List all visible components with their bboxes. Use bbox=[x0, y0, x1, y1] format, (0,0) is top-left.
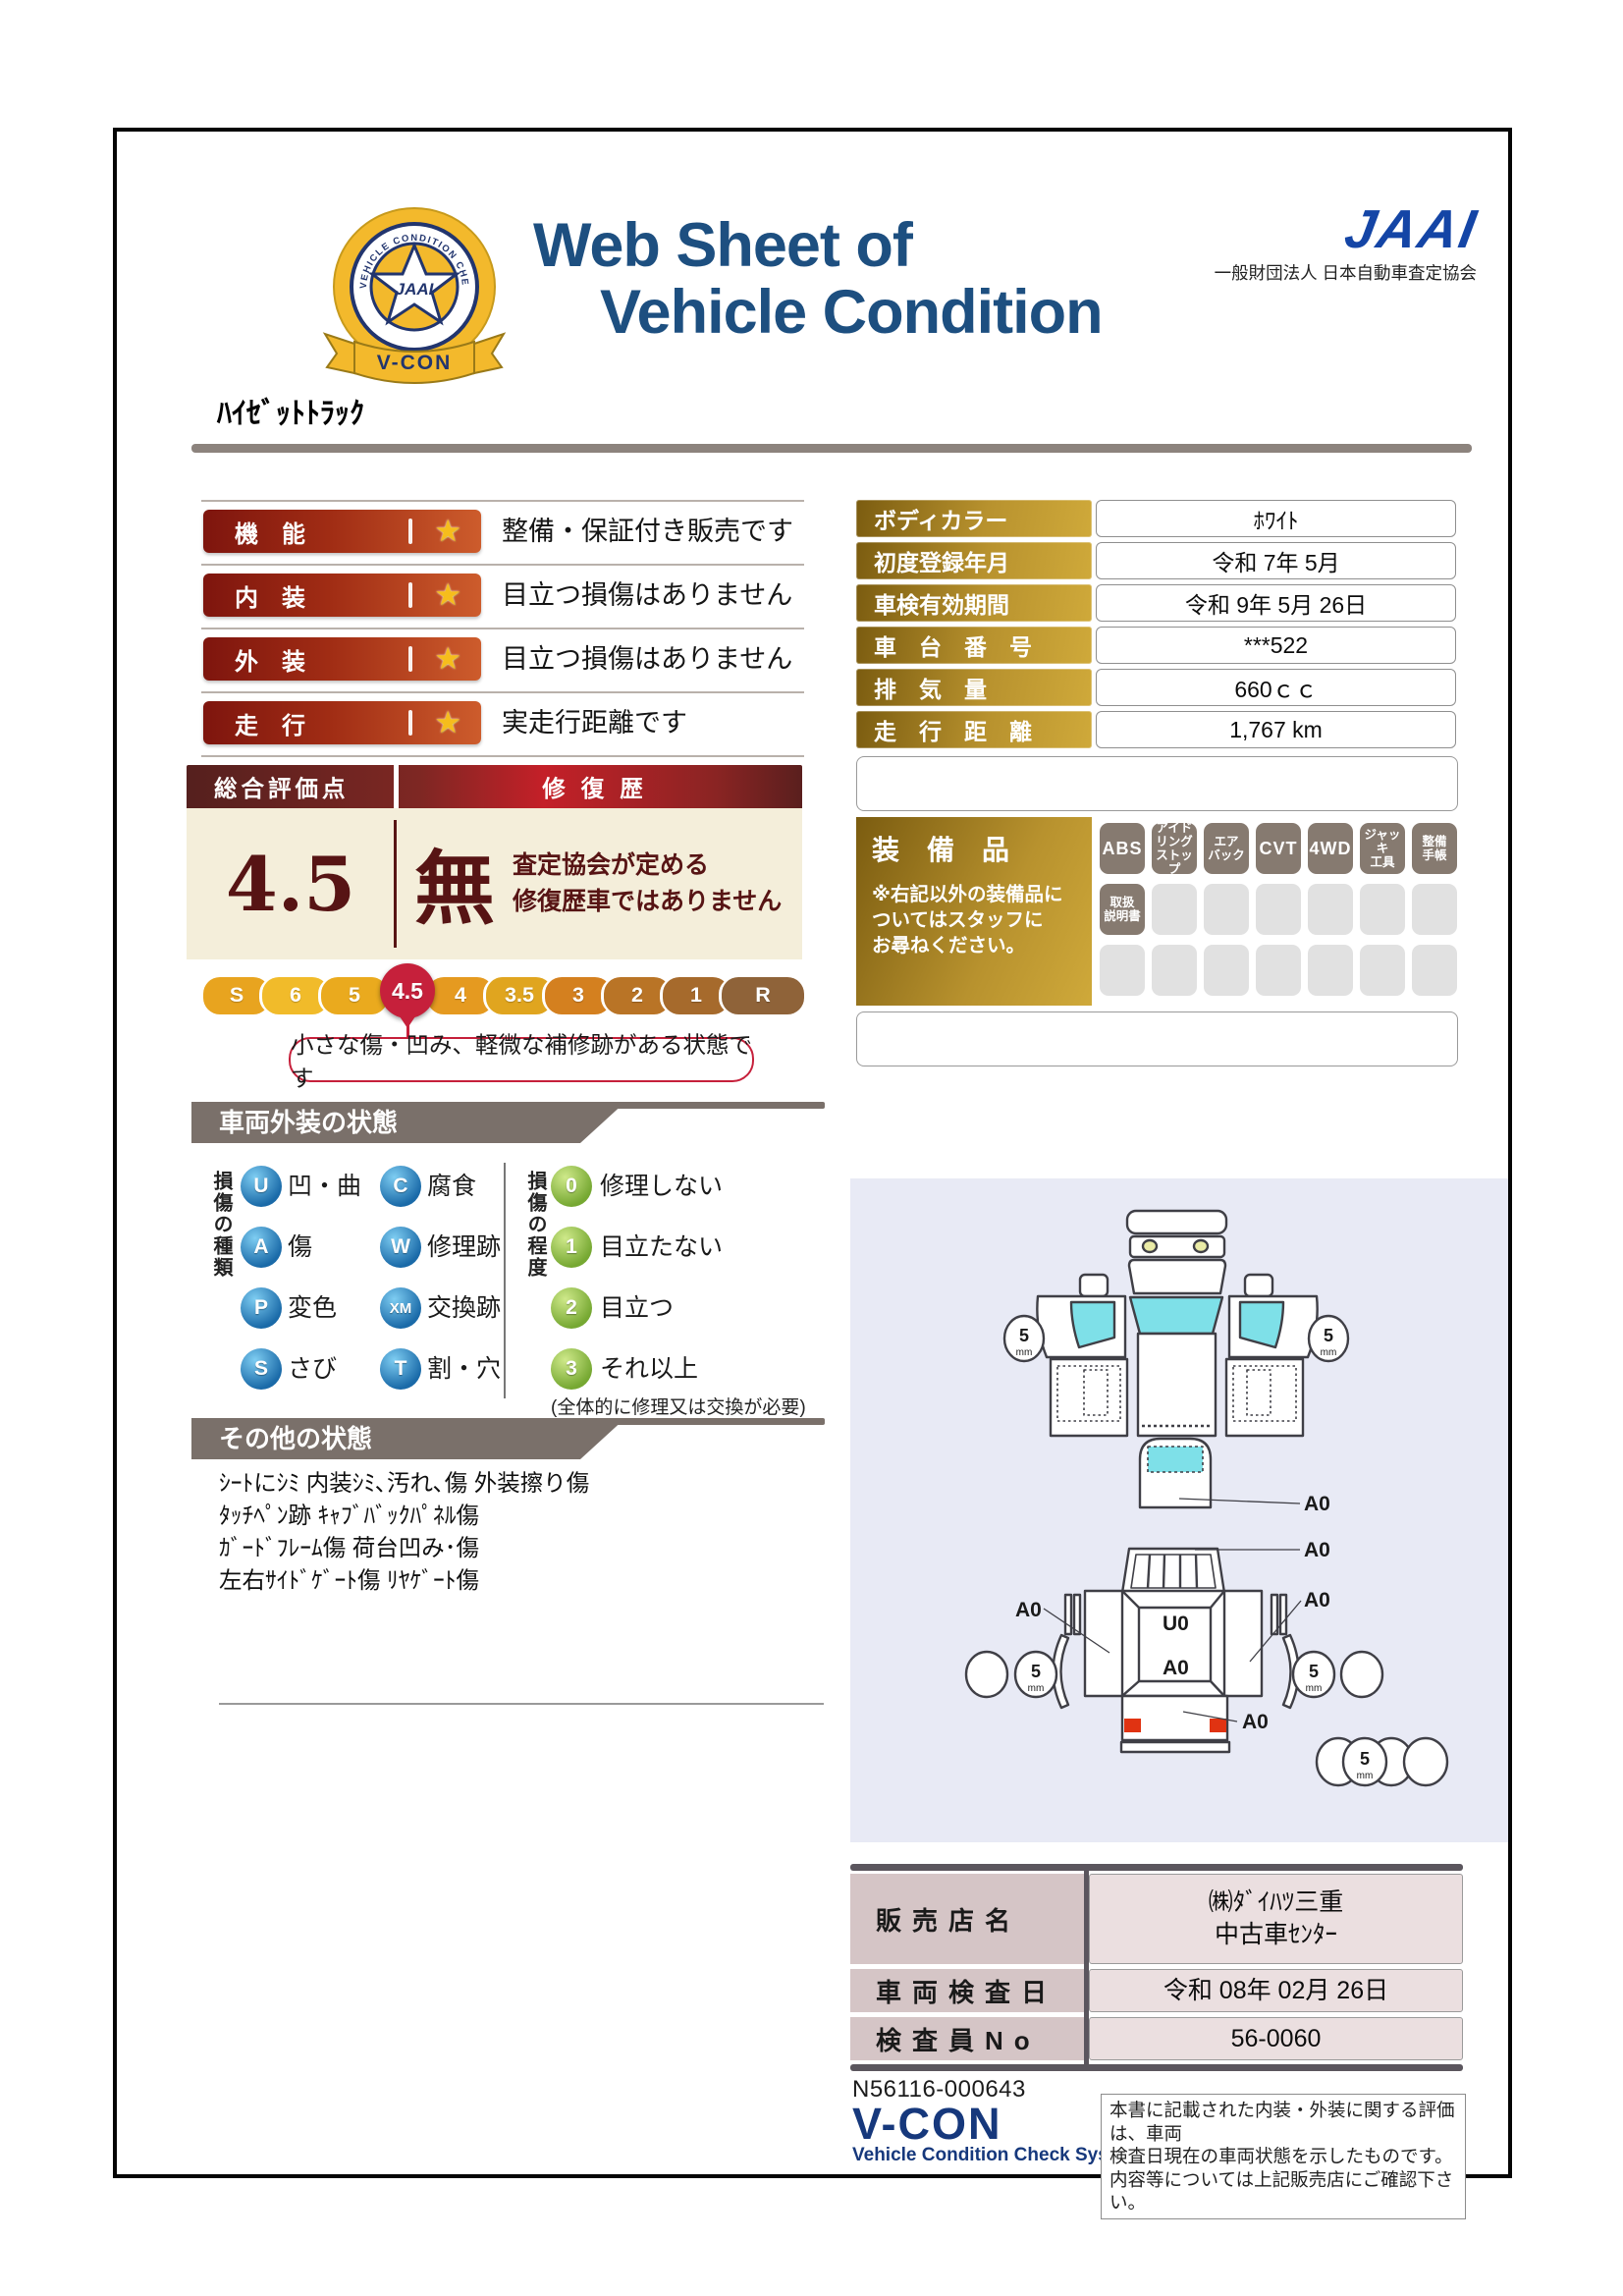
dealer-table-top-bar bbox=[850, 1864, 1463, 1871]
damage-type-label: 腐食 bbox=[427, 1166, 476, 1207]
equipment-tag-empty bbox=[1412, 884, 1457, 935]
equipment-tag-airbag: エア バック bbox=[1204, 823, 1249, 874]
damage-type-code: U bbox=[241, 1166, 282, 1207]
diagram-label-a0: A0 bbox=[1304, 1493, 1330, 1515]
badge-divider bbox=[408, 582, 412, 608]
info-label: 車検有効期間 bbox=[856, 584, 1092, 622]
sheet-title-line2: Vehicle Condition bbox=[600, 281, 1103, 346]
damage-degree-label: それ以上 bbox=[600, 1348, 698, 1390]
inspector-no-value: 56-0060 bbox=[1089, 2017, 1463, 2060]
diagram-label-a0: A0 bbox=[1163, 1657, 1189, 1679]
grade-scale-item: S bbox=[203, 977, 270, 1014]
damage-type-label: 割・穴 bbox=[427, 1348, 501, 1390]
equipment-tag-empty bbox=[1308, 945, 1353, 996]
grade-scale-item: 1 bbox=[663, 977, 730, 1014]
diagram-rear-window bbox=[1148, 1447, 1203, 1472]
equipment-tag-empty bbox=[1152, 884, 1197, 935]
info-value: 1,767 km bbox=[1096, 711, 1456, 748]
badge-divider bbox=[408, 646, 412, 672]
dealer-table-bottom-bar bbox=[850, 2064, 1463, 2071]
damage-type-label: 傷 bbox=[288, 1227, 312, 1268]
tire-depth-value: 5 bbox=[1324, 1326, 1333, 1345]
damage-type-axis: 損傷の種類 bbox=[207, 1171, 236, 1279]
equipment-tag-empty bbox=[1360, 945, 1405, 996]
damage-type-label: 修理跡 bbox=[427, 1227, 501, 1268]
diagram-label-a0: A0 bbox=[1015, 1599, 1042, 1621]
damage-degree-code: 2 bbox=[551, 1287, 592, 1329]
equipment-title: 装 備 品 bbox=[872, 829, 1092, 868]
rating-badge-interior: 内 装 ★ bbox=[203, 574, 481, 617]
overall-score-value: 4.5 bbox=[187, 808, 395, 959]
diagram-taillight-right bbox=[1210, 1719, 1226, 1732]
tire-depth-value: 5 bbox=[1019, 1326, 1029, 1345]
disclaimer-text: 本書に記載された内装・外装に関する評価は、車両 検査日現在の車両状態を示したもの… bbox=[1101, 2094, 1466, 2219]
star-icon: ★ bbox=[434, 705, 461, 740]
sheet-frame: VEHICLE CONDITION CHECK SYSTEM JAAI V-CO… bbox=[113, 128, 1512, 2178]
damage-degree-code: 1 bbox=[551, 1227, 592, 1268]
info-value: ﾎﾜｲﾄ bbox=[1096, 500, 1456, 537]
star-icon: ★ bbox=[434, 577, 461, 613]
rating-separator bbox=[201, 628, 804, 629]
damage-type-label: 交換跡 bbox=[427, 1287, 501, 1329]
exterior-section-title: 車両外装の状態 bbox=[191, 1102, 625, 1143]
badge-ribbon-text: V-CON bbox=[377, 352, 453, 374]
tire-depth-value: 5 bbox=[1360, 1749, 1370, 1769]
grade-callout: 小さな傷・凹み、軽微な補修跡がある状態です bbox=[289, 1037, 754, 1082]
diagram-taillight-left bbox=[1124, 1719, 1141, 1732]
dealer-name-value: ㈱ﾀﾞｲﾊﾂ三重 中古車ｾﾝﾀｰ bbox=[1089, 1874, 1463, 1964]
repair-history-title: 修復歴 bbox=[399, 770, 802, 803]
equipment-tag-empty bbox=[1360, 884, 1405, 935]
info-label: ボディカラー bbox=[856, 500, 1092, 537]
diagram-tailgate bbox=[1122, 1696, 1227, 1740]
damage-degree-axis: 損傷の程度 bbox=[521, 1171, 550, 1279]
tire-depth-value: 5 bbox=[1031, 1662, 1041, 1681]
diagram-hood bbox=[1129, 1260, 1225, 1293]
jaai-logo-block: JAAI 一般財団法人 日本自動車査定協会 bbox=[1138, 202, 1477, 285]
rating-desc: 実走行距離です bbox=[502, 701, 687, 744]
equipment-note: ※右記以外の装備品に ついてはスタッフに お尋ねください。 bbox=[872, 882, 1092, 958]
damage-degree-label: 目立つ bbox=[600, 1287, 674, 1329]
rating-separator bbox=[201, 564, 804, 566]
rating-badge-exterior: 外 装 ★ bbox=[203, 637, 481, 681]
rating-badge-mileage: 走 行 ★ bbox=[203, 701, 481, 744]
legend-divider bbox=[504, 1163, 506, 1398]
badge-jaai-text: JAAI bbox=[396, 280, 435, 299]
vehicle-diagram-panel: A0 A0 A0 A0 U0 A0 A0 5 mm 5 mm 5 mm 5 mm… bbox=[850, 1178, 1508, 1842]
vcon-badge-logo-icon: VEHICLE CONDITION CHECK SYSTEM JAAI V-CO… bbox=[309, 204, 519, 385]
equipment-tag-cvt: CVT bbox=[1256, 823, 1301, 874]
overall-body: 4.5 無 査定協会が定める 修復歴車ではありません bbox=[187, 808, 802, 959]
rating-desc: 目立つ損傷はありません bbox=[502, 574, 792, 617]
tag-label: 取扱 説明書 bbox=[1104, 896, 1141, 923]
grade-scale: S 6 5 4.5 4 3.5 3 2 1 R bbox=[203, 972, 796, 1018]
equipment-tag-empty bbox=[1256, 884, 1301, 935]
info-label: 初度登録年月 bbox=[856, 542, 1092, 579]
other-section-title: その他の状態 bbox=[191, 1418, 625, 1459]
equipment-tag-jack-tools: ジャッキ 工具 bbox=[1360, 823, 1405, 874]
damage-type-code: P bbox=[241, 1287, 282, 1329]
tag-label: アイド リング ストップ bbox=[1152, 821, 1197, 876]
info-empty-box bbox=[856, 756, 1458, 811]
equipment-empty-box bbox=[856, 1011, 1458, 1066]
grade-scale-item: 4 bbox=[427, 977, 494, 1014]
rating-label: 機 能 bbox=[235, 515, 305, 549]
grade-scale-item: 6 bbox=[262, 977, 329, 1014]
tire-depth-unit: mm bbox=[1357, 1771, 1374, 1781]
badge-divider bbox=[408, 710, 412, 736]
damage-type-code: C bbox=[380, 1166, 421, 1207]
star-icon: ★ bbox=[434, 641, 461, 677]
inspector-no-label: 検査員No bbox=[850, 2017, 1084, 2060]
diagram-front-bumper bbox=[1127, 1211, 1226, 1233]
diagram-label-a0: A0 bbox=[1304, 1589, 1330, 1612]
repair-history-value: 無 bbox=[414, 823, 495, 940]
other-condition-text: ｼｰﾄにｼﾐ 内装ｼﾐ､汚れ､傷 外装擦り傷 ﾀｯﾁﾍﾟﾝ跡 ｷｬﾌﾞﾊﾞｯｸﾊ… bbox=[219, 1467, 808, 1597]
tire-depth-unit: mm bbox=[1321, 1347, 1337, 1358]
tire-depth-unit: mm bbox=[1306, 1683, 1323, 1694]
damage-type-code: S bbox=[241, 1348, 282, 1390]
damage-degree-code: 3 bbox=[551, 1348, 592, 1390]
rating-label: 内 装 bbox=[235, 578, 305, 613]
tire-depth-unit: mm bbox=[1028, 1683, 1045, 1694]
grade-scale-item: R bbox=[722, 977, 804, 1014]
damage-degree-note: (全体的に修理又は交換が必要) bbox=[551, 1393, 806, 1419]
other-section-rule bbox=[219, 1703, 824, 1705]
inspection-date-label: 車両検査日 bbox=[850, 1969, 1084, 2012]
damage-type-code: A bbox=[241, 1227, 282, 1268]
equipment-tag-empty bbox=[1100, 945, 1145, 996]
equipment-tag-idling-stop: アイド リング ストップ bbox=[1152, 823, 1197, 874]
vcon-subtitle: Vehicle Condition Check System bbox=[852, 2145, 1142, 2166]
tag-label: CVT bbox=[1260, 839, 1298, 859]
diagram-headrest-left bbox=[1080, 1275, 1108, 1296]
grade-scale-item: 5 bbox=[321, 977, 388, 1014]
equipment-panel: 装 備 品 ※右記以外の装備品に ついてはスタッフに お尋ねください。 bbox=[856, 817, 1092, 1006]
jaai-logo: JAAI bbox=[1133, 202, 1482, 256]
equipment-tag-service-book: 整備 手帳 bbox=[1412, 823, 1457, 874]
grade-scale-item: 3.5 bbox=[486, 977, 553, 1014]
info-label: 走 行 距 離 bbox=[856, 711, 1092, 748]
diagram-headlight-right bbox=[1194, 1240, 1208, 1252]
equipment-row-3 bbox=[1100, 945, 1457, 996]
equipment-tag-empty bbox=[1204, 884, 1249, 935]
overall-score-block: 総合評価点 修復歴 4.5 無 査定協会が定める 修復歴車ではありません bbox=[187, 765, 802, 959]
equipment-tag-manual: 取扱 説明書 bbox=[1100, 884, 1145, 935]
rating-desc: 目立つ損傷はありません bbox=[502, 637, 792, 681]
equipment-row-2: 取扱 説明書 bbox=[1100, 884, 1457, 935]
info-value: 660ｃｃ bbox=[1096, 669, 1456, 706]
info-label: 車 台 番 号 bbox=[856, 627, 1092, 664]
vehicle-name: ﾊｲｾﾞｯﾄﾄﾗｯｸ bbox=[217, 389, 364, 432]
damage-type-label: さび bbox=[288, 1348, 337, 1390]
equipment-tag-empty bbox=[1152, 945, 1197, 996]
rating-desc: 整備・保証付き販売です bbox=[502, 510, 793, 553]
rating-badge-function: 機 能 ★ bbox=[203, 510, 481, 553]
diagram-headrest-right bbox=[1245, 1275, 1272, 1296]
rating-separator bbox=[201, 691, 804, 693]
diagram-label-u0: U0 bbox=[1163, 1613, 1189, 1635]
tag-label: エア バック bbox=[1208, 835, 1245, 862]
damage-type-label: 凹・曲 bbox=[288, 1166, 361, 1207]
diagram-headlight-left bbox=[1143, 1240, 1157, 1252]
repair-history-note: 査定協会が定める 修復歴車ではありません bbox=[513, 847, 782, 920]
diagram-bed-side-left bbox=[1051, 1359, 1127, 1436]
overall-title: 総合評価点 bbox=[214, 770, 350, 803]
tag-label: ジャッキ 工具 bbox=[1360, 828, 1405, 869]
equipment-tag-empty bbox=[1308, 884, 1353, 935]
rating-separator bbox=[201, 500, 804, 502]
grade-scale-item: 2 bbox=[604, 977, 671, 1014]
equipment-tag-empty bbox=[1256, 945, 1301, 996]
info-label: 排 気 量 bbox=[856, 669, 1092, 706]
rating-label: 走 行 bbox=[235, 706, 305, 740]
grade-scale-item: 3 bbox=[545, 977, 612, 1014]
equipment-row-1: ABS アイド リング ストップ エア バック CVT 4WD ジャッキ 工具 … bbox=[1100, 823, 1457, 874]
vehicle-diagram: A0 A0 A0 A0 U0 A0 A0 5 mm 5 mm 5 mm 5 mm… bbox=[850, 1178, 1508, 1842]
diagram-windshield bbox=[1130, 1297, 1222, 1334]
header-divider-rule bbox=[191, 444, 1472, 453]
sheet-title-line1: Web Sheet of bbox=[533, 214, 912, 279]
badge-divider bbox=[408, 519, 412, 544]
diagram-rear-step bbox=[1121, 1742, 1229, 1752]
info-value: 令和 9年 5月 26日 bbox=[1096, 584, 1456, 622]
diagram-label-a0: A0 bbox=[1304, 1539, 1330, 1561]
damage-degree-label: 修理しない bbox=[600, 1166, 723, 1207]
tire-depth-unit: mm bbox=[1016, 1347, 1033, 1358]
equipment-tag-abs: ABS bbox=[1100, 823, 1145, 874]
equipment-tag-empty bbox=[1204, 945, 1249, 996]
damage-degree-label: 目立たない bbox=[600, 1227, 723, 1268]
overall-body-divider bbox=[394, 820, 397, 948]
tag-label: 整備 手帳 bbox=[1422, 835, 1446, 862]
star-icon: ★ bbox=[434, 514, 461, 549]
diagram-cab-floor bbox=[1138, 1334, 1216, 1436]
dealer-name-label: 販売店名 bbox=[850, 1874, 1084, 1964]
damage-type-label: 変色 bbox=[288, 1287, 337, 1329]
info-value: ***522 bbox=[1096, 627, 1456, 664]
tag-label: 4WD bbox=[1310, 839, 1352, 859]
diagram-spare-tire bbox=[1404, 1738, 1447, 1785]
diagram-tire-rear-right-outer bbox=[1341, 1652, 1382, 1697]
tag-label: ABS bbox=[1102, 839, 1142, 859]
grade-scale-selected: 4.5 bbox=[380, 963, 435, 1018]
vehicle-condition-sheet: VEHICLE CONDITION CHECK SYSTEM JAAI V-CO… bbox=[0, 0, 1623, 2296]
damage-type-code: W bbox=[380, 1227, 421, 1268]
rating-separator bbox=[201, 755, 804, 757]
diagram-label-a0: A0 bbox=[1242, 1711, 1269, 1733]
vcon-logo: V-CON bbox=[852, 2102, 1002, 2146]
overall-header: 総合評価点 修復歴 bbox=[187, 765, 802, 808]
tire-depth-value: 5 bbox=[1309, 1662, 1319, 1681]
jaai-org-name: 一般財団法人 日本自動車査定協会 bbox=[1138, 260, 1477, 285]
damage-degree-code: 0 bbox=[551, 1166, 592, 1207]
equipment-tag-empty bbox=[1412, 945, 1457, 996]
rating-label: 外 装 bbox=[235, 642, 305, 677]
diagram-tire-rear-left-outer bbox=[966, 1652, 1007, 1697]
damage-type-code: T bbox=[380, 1348, 421, 1390]
damage-type-code: XM bbox=[380, 1287, 421, 1329]
info-value: 令和 7年 5月 bbox=[1096, 542, 1456, 579]
equipment-tag-4wd: 4WD bbox=[1308, 823, 1353, 874]
inspection-date-value: 令和 08年 02月 26日 bbox=[1089, 1969, 1463, 2012]
